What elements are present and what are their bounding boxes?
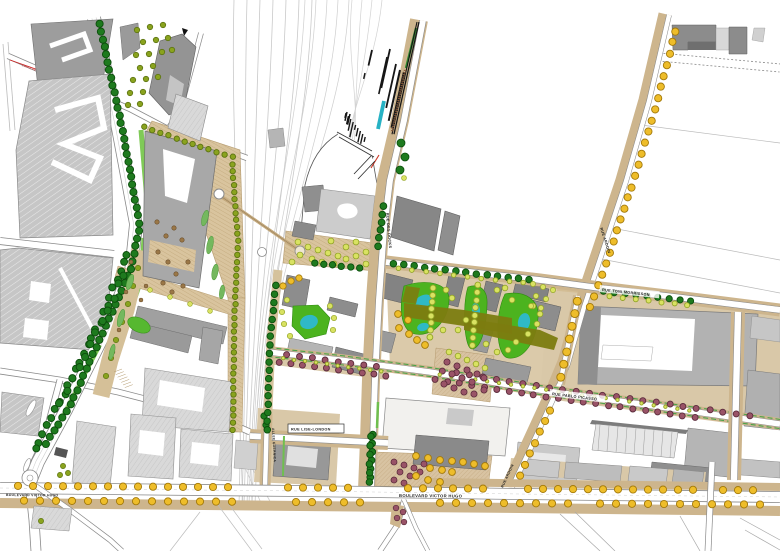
svg-text:BOULEVARD VICTOR HUGO: BOULEVARD VICTOR HUGO bbox=[6, 493, 58, 497]
svg-text:RUE LISE-LONDON: RUE LISE-LONDON bbox=[291, 428, 331, 432]
svg-text:BOULEVARD VICTOR HUGO: BOULEVARD VICTOR HUGO bbox=[399, 493, 463, 499]
